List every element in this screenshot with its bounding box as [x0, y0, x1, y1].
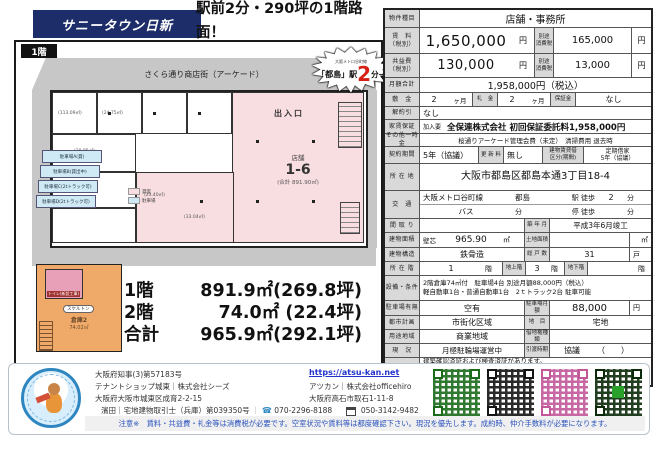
- equipment-value: 2階倉庫74㎡付 駐車場4台 別途月額88,000円（税込） 軽自動車1台・普通…: [420, 276, 651, 300]
- row-rent: 賃 料 （税別） 1,650,000 円 別途 消費税 165,000 円: [385, 27, 651, 53]
- address-label: 所 在 地: [385, 164, 420, 190]
- parking-space-a: 駐車場A(貸): [42, 150, 102, 163]
- property-name-banner: サニータウン日新: [33, 10, 201, 38]
- legend-swatch-blue: [128, 197, 140, 204]
- guarantee-money-value: なし: [576, 93, 651, 106]
- parking-fee-value: 88,000: [550, 301, 629, 315]
- company-logo: [21, 368, 81, 428]
- shop-name: テナントショップ城東｜株式会社シーズ: [95, 381, 230, 392]
- key-money-label: 礼 金: [472, 93, 498, 106]
- qr-code-2: [487, 369, 534, 416]
- lease-type-value: 定期借家 5年（協議）: [584, 147, 651, 163]
- shop-main-label: 店舗 1-6 (合計 891.90㎡): [232, 154, 364, 187]
- rent-guarantee-value: 全保連株式会社 初回保証委託料1,958,000円: [444, 120, 651, 133]
- property-type-value: 店舗・事務所: [420, 10, 651, 27]
- city-planning-label: 都市計画: [385, 316, 420, 329]
- row-address: 所 在 地 大阪市都島区都島本通3丁目18-4: [385, 163, 651, 190]
- shop-address: 大阪府大阪市城東区成育2-2-15: [95, 393, 202, 404]
- monthly-total-value: 1,958,000円（税込）: [420, 78, 651, 92]
- common-fee-amount: 130,000: [420, 54, 512, 77]
- transit-stop-unit: 分: [624, 205, 651, 218]
- legend-label: 貸室: [142, 189, 151, 195]
- floor-unit: 階: [482, 262, 502, 275]
- total-units-value: 31: [550, 248, 629, 261]
- zoning-label: 用途地域: [385, 330, 420, 343]
- floors-above-unit: 階: [548, 262, 564, 275]
- floors-above-label: 地上階: [502, 262, 526, 275]
- skeleton-label: スケルトン: [63, 305, 94, 313]
- row-parking: 駐車場有無 空有 駐車場月額 88,000 円: [385, 300, 651, 315]
- equipment-label: 設備・条件: [385, 276, 420, 300]
- common-fee-tax-label: 別途 消費税: [534, 54, 554, 77]
- row-common-fee: 共益費 （税別） 130,000 円 別途 消費税 13,000 円: [385, 53, 651, 77]
- land-category-value: 宅地: [550, 316, 651, 329]
- summary-value: 965.9㎡(292.1坪): [174, 324, 376, 346]
- rent-tax-unit: 円: [631, 28, 651, 53]
- station-starburst: 大阪メトロ谷町線 「都島」駅 2 分→: [312, 47, 390, 95]
- common-fee-label: 共益費 （税別）: [385, 54, 420, 77]
- qr-center-logo: [612, 386, 624, 398]
- row-building-area: 建物面積 壁芯 965.90 ㎡ 土地面積 ㎡: [385, 232, 651, 247]
- parking-fee-unit: 円: [629, 301, 651, 315]
- monthly-total-label: 月額合計: [385, 78, 420, 92]
- parking-availability-value: 空有: [420, 301, 524, 315]
- floors-below-label: 地下階: [564, 262, 588, 275]
- parking-space-c: 駐車場C(2tトラック可): [38, 180, 98, 193]
- structure-label: 建物構造: [385, 248, 420, 261]
- land-area-unit: ㎡: [629, 233, 651, 247]
- zoning-value: 商業地域: [420, 330, 524, 343]
- transit-walk-unit: 分: [624, 191, 651, 204]
- built-value: 平成3年6月竣工: [550, 219, 651, 232]
- leasehold-value: [550, 330, 651, 343]
- lease-type-label: 建物賃貸借 区分(期間): [542, 147, 584, 163]
- license-number: 大阪府知事(3)第57183号: [95, 369, 182, 380]
- plan-legend: 貸室 駐車場: [128, 188, 156, 206]
- street-label: さくら通り商店街（アーケード）: [144, 69, 264, 80]
- shop-number: 1-6: [232, 162, 364, 180]
- qr-code-3: [541, 369, 588, 416]
- land-area-value: [550, 233, 629, 247]
- address-value: 大阪市都島区都島本通3丁目18-4: [420, 164, 651, 190]
- row-deposit: 敷 金 2 ヶ月 礼 金 2 ヶ月 保証金 なし: [385, 92, 651, 106]
- rent-tax-label: 別途 消費税: [534, 28, 554, 53]
- qr-code-4: [595, 369, 642, 416]
- area-summary: 1階 891.9㎡(269.8坪) 2階 74.0㎡ (22.4坪) 合計 96…: [124, 280, 376, 346]
- parking-space-d: 駐車場D(2tトラック可): [36, 195, 96, 208]
- leasehold-label: 借地権種類: [524, 330, 550, 343]
- station-name: 「都島」駅: [317, 69, 357, 80]
- summary-label: 2階: [124, 302, 174, 324]
- city-planning-value: 市街化区域: [420, 316, 524, 329]
- mascot-head: [48, 383, 60, 395]
- agent-license: 濱田｜宅地建物取引士（兵庫）第039350号: [101, 406, 250, 415]
- land-category-label: 地 目: [524, 316, 550, 329]
- transit-walk-prefix: 駅 徒歩: [558, 191, 598, 204]
- left-room-3: [52, 208, 136, 243]
- shop-total-area: (合計 891.90㎡): [232, 180, 364, 187]
- building-area-label: 建物面積: [385, 233, 420, 247]
- pillar-marker: [153, 112, 156, 115]
- unit-room-4: [187, 92, 232, 134]
- contract-value: 5年（協議）: [420, 147, 478, 163]
- shop-type: 店舗: [232, 154, 364, 162]
- pillar-marker: [108, 112, 111, 115]
- row-floor: 所 在 階 1 階 地上階 3 階 地下階 階: [385, 261, 651, 275]
- disclaimer-note: 注意※ 賃料・共益費・礼金等は消費税が必要です。空室状況や賃料等は都度確認下さい…: [85, 416, 645, 431]
- parking-fee-label: 駐車場月額: [524, 301, 550, 315]
- phone-number: 070-2296-8188: [274, 406, 332, 415]
- stairs-icon: [39, 321, 53, 351]
- parking-space-b: 駐車場B(貸出中): [40, 165, 100, 178]
- headline-line1: 駅前2分・290坪の1階路面！: [196, 0, 386, 45]
- transit-label: 交 通: [385, 191, 420, 218]
- shop-area-extension: [136, 172, 234, 243]
- unit-room-3: [142, 92, 187, 134]
- floors-below-value: [588, 262, 635, 275]
- station-minutes: 2: [357, 65, 371, 83]
- row-equipment: 設備・条件 2階倉庫74㎡付 駐車場4台 別途月額88,000円（税込） 軽自動…: [385, 275, 651, 300]
- second-floor-plan: トイレ(新設工事) スケルトン 倉庫2 74.02㎡: [36, 264, 122, 352]
- pillar-marker: [200, 200, 203, 203]
- footer-panel: 大阪府知事(3)第57183号 テナントショップ城東｜株式会社シーズ 大阪府大阪…: [8, 363, 650, 435]
- row-other-fees: その他一時金 桜通りアーケード管理会費（未定） 清掃費用 退去時: [385, 133, 651, 146]
- deposit-value: 2: [420, 93, 448, 106]
- stairs-icon: [338, 102, 362, 148]
- pillar-marker: [312, 200, 315, 203]
- total-units-label: 総 戸 数: [524, 248, 550, 261]
- rent-guarantee-sub-label: 加入要: [420, 120, 444, 133]
- room-area-label: (113.09㎡): [58, 110, 82, 116]
- floor-value: 1: [420, 262, 482, 275]
- floors-above-value: 3: [526, 262, 548, 275]
- total-units-unit: 戸: [629, 248, 651, 261]
- rent-label: 賃 料 （税別）: [385, 28, 420, 53]
- row-cancellation: 解約引 なし: [385, 106, 651, 119]
- summary-label: 合計: [124, 324, 174, 346]
- layout-label: 間 取 り: [385, 219, 420, 232]
- legend-swatch-pink: [128, 188, 140, 195]
- row-monthly-total: 月額合計 1,958,000円（税込）: [385, 77, 651, 92]
- rent-unit: 円: [512, 28, 534, 53]
- road-right: [368, 90, 377, 248]
- pillar-marker: [256, 200, 259, 203]
- other-fees-value: 桜通りアーケード管理会費（未定） 清掃費用 退去時: [420, 134, 651, 146]
- toilet-label: トイレ(新設工事): [47, 291, 80, 297]
- contract-label: 契約期間: [385, 147, 420, 163]
- brand-address: 大阪府高石市取石1-11-8: [309, 393, 394, 404]
- handover-label: 引渡時期: [524, 344, 550, 357]
- transit-station: 都島: [512, 191, 558, 204]
- row-status: 現 況 月極駐輪場運営中 引渡時期 協議 （ ）: [385, 343, 651, 357]
- room-area-label: (24.75㎡): [102, 110, 123, 116]
- spec-table: 物件種目 店舗・事務所 賃 料 （税別） 1,650,000 円 別途 消費税 …: [383, 8, 653, 387]
- equipment-line2: 軽自動車1台・普通自動車1台 2ｔトラック2台 駐車可能: [423, 288, 591, 297]
- deposit-unit: ヶ月: [448, 93, 472, 106]
- row-transit: 交 通 大阪メトロ谷町線 都島 駅 徒歩 2 分 バス 分 停 徒歩 分: [385, 190, 651, 218]
- cancellation-label: 解約引: [385, 107, 420, 119]
- summary-label: 1階: [124, 280, 174, 302]
- pillar-marker: [198, 112, 201, 115]
- property-name: サニータウン日新: [61, 15, 173, 34]
- current-status-label: 現 況: [385, 344, 420, 357]
- qr-code-1: [433, 369, 480, 416]
- summary-value: 891.9㎡(269.8坪): [174, 280, 376, 302]
- transit-bus-min: 分: [512, 205, 558, 218]
- property-type-label: 物件種目: [385, 10, 420, 27]
- floor-badge: 1階: [21, 44, 57, 58]
- summary-value: 74.0㎡ (22.4坪): [174, 302, 376, 324]
- common-fee-tax-unit: 円: [631, 54, 651, 77]
- parking-availability-label: 駐車場有無: [385, 301, 420, 315]
- stairs-icon: [340, 202, 360, 234]
- transit-walk-min: 2: [598, 191, 624, 204]
- key-money-value: 2: [498, 93, 526, 106]
- transit-stop-min: [598, 205, 624, 218]
- entrance-label: 出入口: [274, 108, 304, 119]
- row-structure: 建物構造 鉄骨造 総 戸 数 31 戸: [385, 247, 651, 261]
- key-money-unit: ヶ月: [526, 93, 550, 106]
- cancellation-value: なし: [420, 107, 651, 119]
- row-layout: 間 取 り 築 年 月 平成3年6月竣工: [385, 218, 651, 232]
- pillar-marker: [256, 140, 259, 143]
- handover-paren: （ ）: [594, 344, 651, 357]
- building-area-value: 965.90: [442, 233, 500, 247]
- renewal-value: 無し: [504, 147, 542, 163]
- renewal-label: 更 新 料: [478, 147, 504, 163]
- legend-label: 駐車場: [142, 198, 156, 204]
- rent-amount: 1,650,000: [420, 28, 512, 53]
- row-rent-guarantee: 家賃保証 加入要 全保連株式会社 初回保証委託料1,958,000円: [385, 119, 651, 133]
- transit-line: 大阪メトロ谷町線: [420, 191, 512, 204]
- building-area-method: 壁芯: [420, 233, 442, 247]
- row-zoning: 用途地域 商業地域 借地権種類: [385, 329, 651, 343]
- other-fees-label: その他一時金: [385, 134, 420, 146]
- phone-icon: ☎: [262, 406, 272, 415]
- fax-icon: [346, 407, 356, 416]
- transit-stop-prefix: 停 徒歩: [558, 205, 598, 218]
- row-property-type: 物件種目 店舗・事務所: [385, 10, 651, 27]
- current-status-value: 月極駐輪場運営中: [420, 344, 524, 357]
- common-fee-tax-amount: 13,000: [554, 54, 631, 77]
- equipment-line1: 2階倉庫74㎡付 駐車場4台 別途月額88,000円（税込）: [423, 279, 588, 288]
- pillar-marker: [312, 140, 315, 143]
- rent-tax-amount: 165,000: [554, 28, 631, 53]
- room-area-label: (33.04㎡): [184, 214, 205, 220]
- guarantee-money-label: 保証金: [550, 93, 576, 106]
- built-label: 築 年 月: [524, 219, 550, 232]
- floor-label: 所 在 階: [385, 262, 420, 275]
- building-area-unit: ㎡: [500, 233, 524, 247]
- structure-value: 鉄骨造: [420, 248, 524, 261]
- floors-below-unit: 階: [635, 262, 651, 275]
- land-area-label: 土地面積: [524, 233, 550, 247]
- fax-number: 050-3142-9482: [361, 406, 419, 415]
- website-link[interactable]: https://atsu-kan.net: [309, 368, 399, 377]
- agent-line: 濱田｜宅地建物取引士（兵庫）第039350号 ｜ ☎ 070-2296-8188…: [101, 405, 419, 416]
- handover-value: 協議: [550, 344, 594, 357]
- transit-bus-label: バス: [420, 205, 512, 218]
- layout-value: [420, 219, 524, 232]
- common-fee-unit: 円: [512, 54, 534, 77]
- deposit-label: 敷 金: [385, 93, 420, 106]
- row-contract: 契約期間 5年（協議） 更 新 料 無し 建物賃貸借 区分(期間) 定期借家 5…: [385, 146, 651, 163]
- row-city-planning: 都市計画 市街化区域 地 目 宅地: [385, 315, 651, 329]
- brand-name: アツカン｜株式会社officehiro: [309, 381, 411, 392]
